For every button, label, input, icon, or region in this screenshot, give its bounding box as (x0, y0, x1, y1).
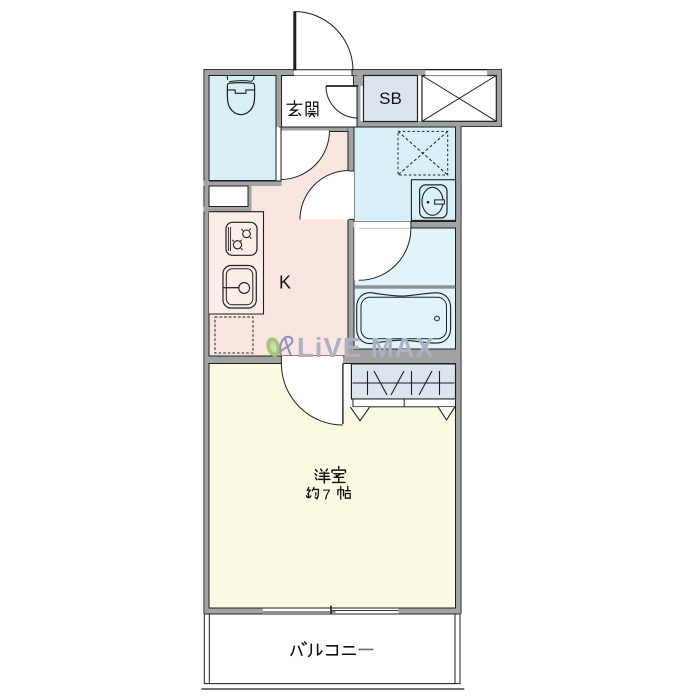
svg-text:LiVE MAX: LiVE MAX (297, 332, 435, 363)
svg-text:K: K (279, 273, 291, 293)
svg-text:SB: SB (379, 89, 402, 108)
svg-text:7: 7 (322, 487, 330, 504)
